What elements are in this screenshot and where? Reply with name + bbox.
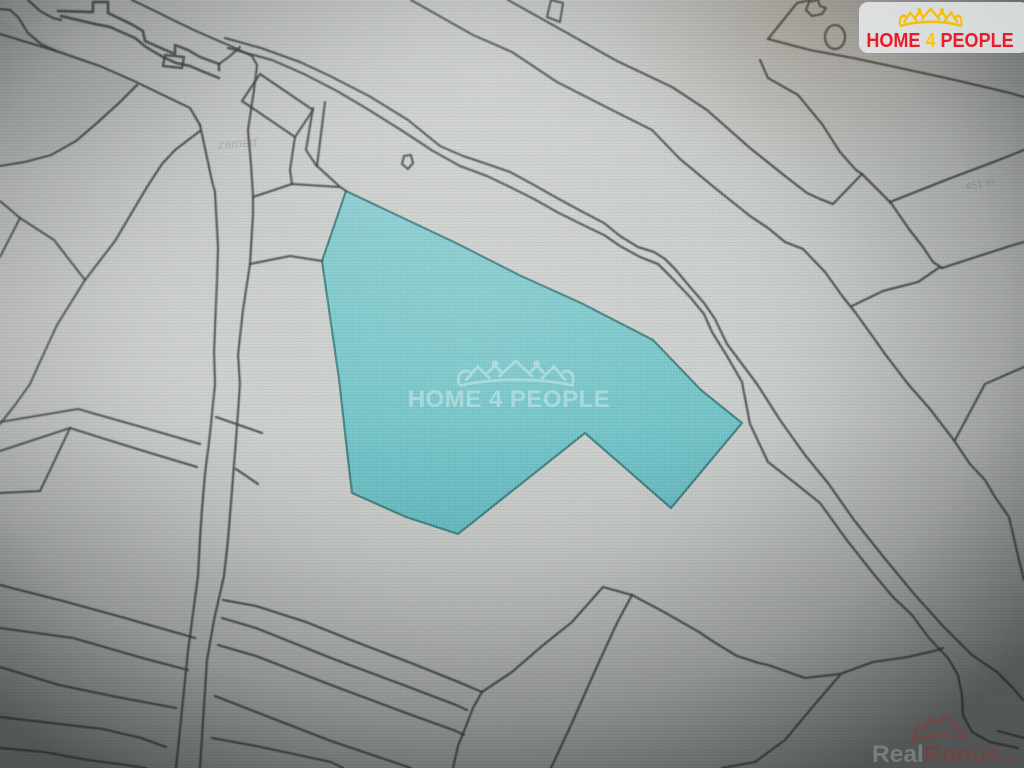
svg-text:HOME 4 PEOPLE: HOME 4 PEOPLE bbox=[408, 386, 611, 413]
svg-text:RealBonus.cz: RealBonus.cz bbox=[872, 741, 1016, 768]
svg-text:HOME 4 PEOPLE: HOME 4 PEOPLE bbox=[866, 30, 1013, 52]
